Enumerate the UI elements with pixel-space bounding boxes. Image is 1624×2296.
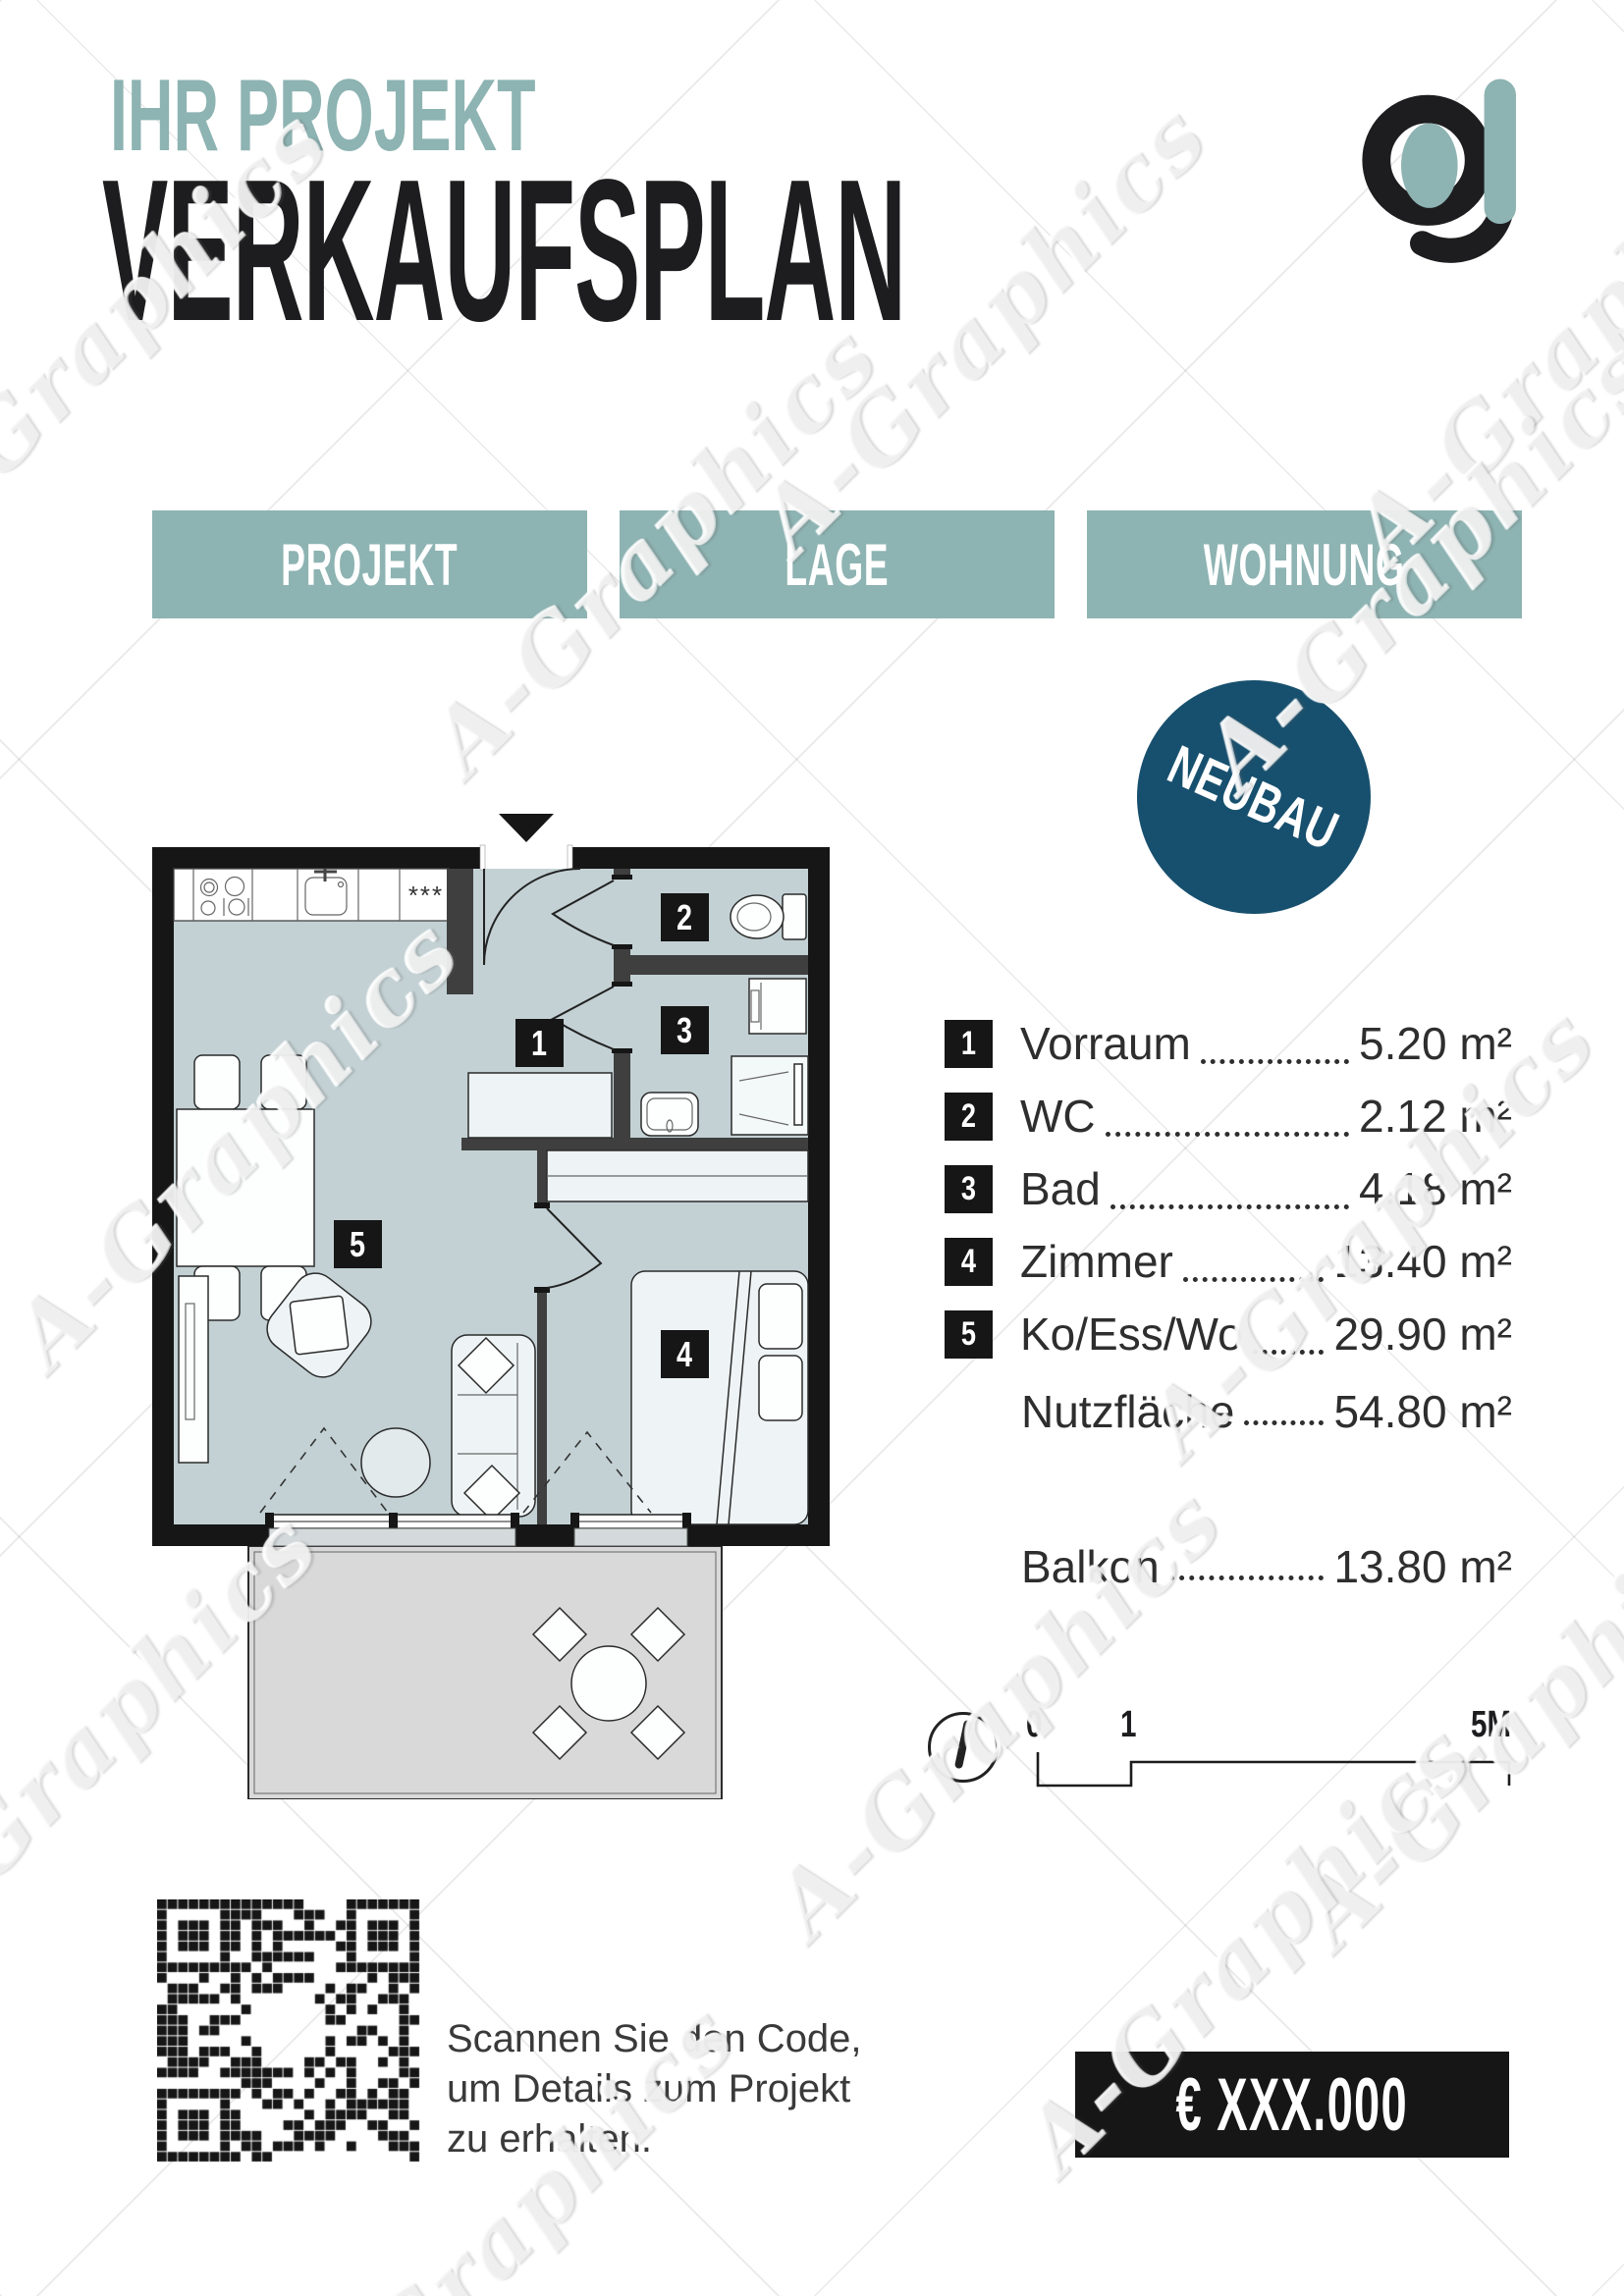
- scale-label-5m: 5M: [1471, 1704, 1523, 1746]
- legend-num-badge: 1: [945, 1020, 993, 1068]
- total-value: 13.80 m²: [1333, 1540, 1512, 1593]
- freezer-symbol: ***: [408, 881, 444, 910]
- legend-num-badge: 3: [945, 1165, 993, 1213]
- legend-row: 4 Zimmer 13.40 m²: [945, 1225, 1512, 1298]
- room-number: 2: [677, 897, 692, 938]
- rug-icon: [361, 1428, 430, 1497]
- room-number: 3: [677, 1010, 692, 1051]
- scale-label-0: 0: [1026, 1704, 1047, 1746]
- total-label: Balkon: [1021, 1540, 1160, 1593]
- dotted-leader: [1201, 1059, 1349, 1064]
- dotted-leader: [1169, 1575, 1325, 1580]
- legend-num: 1: [961, 1025, 976, 1063]
- closet-icon: [468, 1073, 612, 1138]
- scale-bar: 0 1 5M: [928, 1704, 1517, 1792]
- nav-button-lage[interactable]: LAGE: [620, 510, 1055, 618]
- legend-num: 4: [961, 1243, 976, 1281]
- qr-caption: Scannen Sie den Code, um Details zum Pro…: [447, 2014, 862, 2164]
- nav-button-projekt[interactable]: PROJEKT: [152, 510, 587, 618]
- company-logo-icon: [1357, 79, 1534, 265]
- toilet-icon: [731, 894, 806, 939]
- tv-board-icon: [179, 1276, 208, 1463]
- dotted-leader: [1244, 1420, 1324, 1425]
- window-living: [265, 1513, 519, 1546]
- legend-label: Ko/Ess/Wo: [1020, 1308, 1243, 1361]
- neubau-badge: NEUBAU: [1137, 680, 1371, 914]
- legend-num-badge: 2: [945, 1093, 993, 1141]
- shower-icon: [731, 1056, 808, 1135]
- nav-button-label: WOHNUNG: [1204, 531, 1405, 599]
- total-label: Nutzfläche: [1021, 1385, 1234, 1438]
- sofa-icon: [452, 1335, 535, 1521]
- qr-caption-line: um Details zum Projekt: [447, 2064, 862, 2114]
- legend-num: 3: [961, 1170, 976, 1208]
- washbasin-icon: [641, 1093, 698, 1136]
- qr-code: [157, 1899, 420, 2163]
- total-usable-area-row: Nutzfläche 54.80 m²: [945, 1382, 1512, 1441]
- legend-num-badge: 5: [945, 1310, 993, 1359]
- kitchen-counter-icon: ***: [174, 869, 449, 921]
- wardrobe-icon: [547, 1150, 808, 1201]
- legend-row: 2 WC 2.12 m²: [945, 1080, 1512, 1152]
- legend-value: 13.40 m²: [1333, 1235, 1512, 1288]
- nav-button-label: LAGE: [785, 531, 890, 599]
- poster-page: IHR PROJEKT VERKAUFSPLAN PROJEKT LAGE WO…: [0, 0, 1624, 2296]
- dotted-leader: [1110, 1204, 1349, 1209]
- plan-room-badge-4: 4: [661, 1330, 709, 1378]
- legend-label: Zimmer: [1020, 1235, 1173, 1288]
- floor-plan: ***: [152, 808, 830, 1799]
- price-tag: € XXX.000: [1075, 2052, 1509, 2158]
- plan-room-badge-3: 3: [661, 1006, 709, 1054]
- legend-row: 5 Ko/Ess/Wo 29.90 m²: [945, 1298, 1512, 1370]
- title-text: VERKAUFSPLAN: [102, 149, 905, 351]
- room-number: 5: [350, 1224, 365, 1265]
- balcony-table-icon: [571, 1646, 646, 1721]
- legend-value: 2.12 m²: [1359, 1090, 1512, 1143]
- dotted-leader: [1183, 1277, 1325, 1282]
- legend-num: 5: [961, 1315, 976, 1354]
- plan-room-badge-5: 5: [334, 1220, 382, 1268]
- total-balcony-row: Balkon 13.80 m²: [945, 1537, 1512, 1596]
- nav-button-label: PROJEKT: [281, 531, 458, 599]
- room-number: 4: [677, 1334, 692, 1375]
- neubau-badge-label: NEUBAU: [1160, 731, 1348, 862]
- legend-label: Vorraum: [1020, 1017, 1191, 1070]
- bed-icon: [631, 1271, 808, 1524]
- balcony: [248, 1546, 722, 1799]
- scale-label-1: 1: [1120, 1704, 1141, 1746]
- legend-row: 1 Vorraum 5.20 m²: [945, 1007, 1512, 1080]
- legend-row: 3 Bad 4.18 m²: [945, 1152, 1512, 1225]
- legend-value: 5.20 m²: [1359, 1017, 1512, 1070]
- legend-label: Bad: [1020, 1162, 1101, 1215]
- window-bedroom: [570, 1513, 691, 1546]
- legend-num-badge: 4: [945, 1238, 993, 1286]
- price-value: € XXX.000: [1176, 2062, 1408, 2148]
- plan-room-badge-1: 1: [515, 1019, 564, 1067]
- washing-machine-icon: [749, 979, 806, 1034]
- total-value: 54.80 m²: [1333, 1385, 1512, 1438]
- legend-value: 4.18 m²: [1359, 1162, 1512, 1215]
- legend-value: 29.90 m²: [1333, 1308, 1512, 1361]
- legend-label: WC: [1020, 1090, 1096, 1143]
- nav-button-wohnung[interactable]: WOHNUNG: [1087, 510, 1522, 618]
- entrance-arrow-icon: [499, 814, 554, 842]
- qr-caption-line: Scannen Sie den Code,: [447, 2014, 862, 2064]
- scale-bar-line: [928, 1749, 1517, 1790]
- legend-num: 2: [961, 1097, 976, 1136]
- room-legend: 1 Vorraum 5.20 m² 2 WC 2.12 m² 3 Bad 4.1…: [945, 1007, 1512, 1370]
- plan-room-badge-2: 2: [661, 893, 709, 941]
- qr-caption-line: zu erhalten.: [447, 2114, 862, 2164]
- dotted-leader: [1253, 1350, 1325, 1355]
- room-number: 1: [531, 1023, 547, 1064]
- dotted-leader: [1106, 1132, 1349, 1137]
